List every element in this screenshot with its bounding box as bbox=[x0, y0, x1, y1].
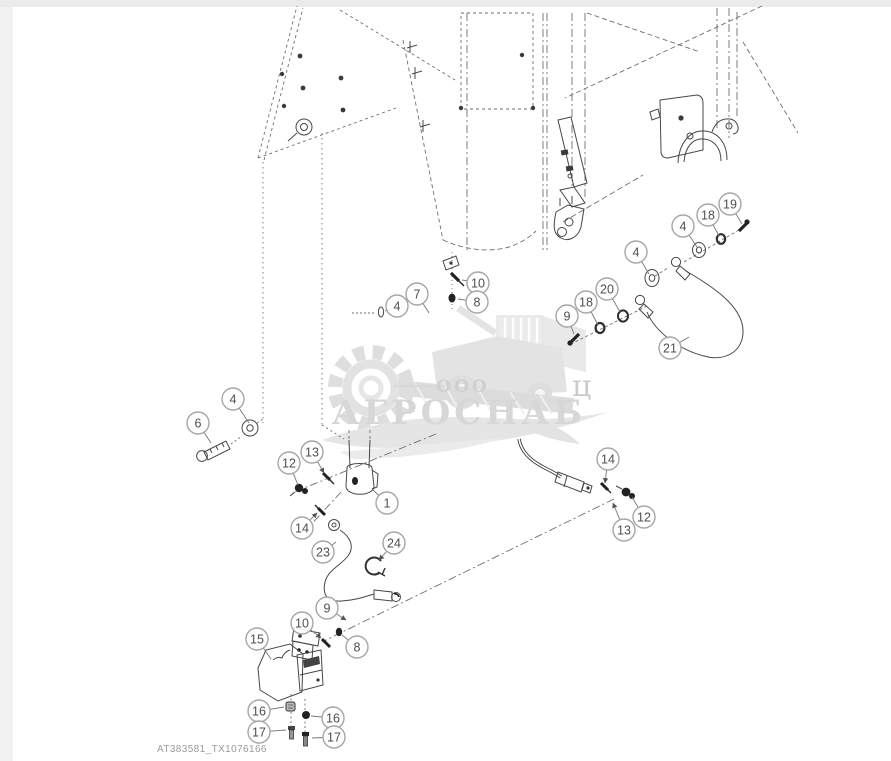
callout-14: 14 bbox=[291, 513, 317, 539]
cable-lockwasher-18b bbox=[596, 323, 605, 333]
bolt-13-left bbox=[323, 473, 334, 484]
svg-text:1: 1 bbox=[384, 496, 391, 510]
svg-text:17: 17 bbox=[252, 725, 266, 739]
callout-23: 23 bbox=[312, 541, 336, 563]
svg-text:12: 12 bbox=[637, 510, 651, 524]
callout-13: 13 bbox=[301, 441, 324, 473]
hose-assembly bbox=[324, 520, 400, 602]
watermark-company-name: АГРОСНАБ bbox=[332, 393, 586, 433]
callout-20: 20 bbox=[596, 278, 620, 312]
callout-4: 4 bbox=[222, 388, 249, 423]
svg-text:18: 18 bbox=[701, 208, 715, 222]
bolt-17-right bbox=[302, 732, 309, 746]
svg-text:12: 12 bbox=[282, 456, 296, 470]
callout-12: 12 bbox=[278, 452, 300, 485]
callout-18: 18 bbox=[575, 291, 598, 325]
svg-text:7: 7 bbox=[414, 287, 421, 301]
svg-text:21: 21 bbox=[663, 341, 677, 355]
svg-text:19: 19 bbox=[723, 197, 737, 211]
callout-10: 10 bbox=[291, 612, 321, 638]
svg-text:4: 4 bbox=[633, 245, 640, 259]
svg-text:13: 13 bbox=[305, 445, 319, 459]
callout-21: 21 bbox=[659, 337, 689, 359]
clamp-24 bbox=[366, 558, 385, 576]
callout-24: 24 bbox=[379, 532, 405, 560]
callout-6: 6 bbox=[187, 412, 211, 443]
ground-cable-assembly bbox=[567, 219, 749, 357]
callout-1: 1 bbox=[373, 490, 398, 514]
cable-washer-4a bbox=[693, 243, 706, 258]
watermark-stray-letter: ц bbox=[572, 369, 591, 404]
svg-text:23: 23 bbox=[316, 545, 330, 559]
svg-text:14: 14 bbox=[295, 521, 309, 535]
callout-19: 19 bbox=[719, 193, 742, 224]
callout-4: 4 bbox=[385, 295, 408, 317]
svg-text:8: 8 bbox=[474, 295, 481, 309]
sensor-12-left bbox=[290, 484, 308, 496]
svg-text:4: 4 bbox=[680, 219, 687, 233]
svg-text:4: 4 bbox=[230, 392, 237, 406]
harness-clip bbox=[443, 252, 464, 312]
callout-4: 4 bbox=[672, 215, 697, 247]
cable-washer-4b bbox=[645, 270, 659, 287]
callout-16: 16 bbox=[311, 707, 344, 729]
callout-8: 8 bbox=[342, 635, 368, 658]
svg-text:10: 10 bbox=[295, 616, 309, 630]
callout-17: 17 bbox=[312, 726, 345, 748]
bushing-16-right bbox=[302, 711, 310, 719]
grommet-8-lower bbox=[336, 628, 342, 636]
callout-15: 15 bbox=[246, 628, 271, 659]
bushing-16-left bbox=[286, 702, 295, 711]
bolt-14-right bbox=[601, 483, 611, 493]
connector-cable-right bbox=[322, 439, 635, 642]
svg-text:10: 10 bbox=[471, 276, 485, 290]
svg-text:24: 24 bbox=[387, 536, 401, 550]
bolt-17-left bbox=[288, 726, 295, 739]
svg-text:8: 8 bbox=[354, 640, 361, 654]
svg-text:20: 20 bbox=[600, 282, 614, 296]
watermark: ООО АГРОСНАБ ц bbox=[322, 305, 608, 459]
svg-text:4: 4 bbox=[394, 299, 401, 313]
svg-text:16: 16 bbox=[326, 711, 340, 725]
svg-text:13: 13 bbox=[617, 523, 631, 537]
callout-12: 12 bbox=[632, 497, 655, 528]
svg-text:14: 14 bbox=[601, 452, 615, 466]
svg-text:17: 17 bbox=[327, 730, 341, 744]
svg-text:18: 18 bbox=[579, 295, 593, 309]
svg-text:6: 6 bbox=[195, 416, 202, 430]
callout-4: 4 bbox=[625, 241, 649, 274]
figure-label: AT383581_TX1076166 bbox=[157, 744, 267, 755]
svg-text:15: 15 bbox=[250, 632, 264, 646]
plate-grommet bbox=[288, 119, 312, 141]
callout-16: 16 bbox=[248, 700, 284, 722]
callout-7: 7 bbox=[406, 283, 429, 313]
mount-bracket-plate bbox=[650, 95, 703, 158]
callout-18: 18 bbox=[697, 204, 719, 236]
svg-text:9: 9 bbox=[324, 601, 331, 615]
svg-text:16: 16 bbox=[252, 704, 266, 718]
callout-14: 14 bbox=[597, 448, 619, 483]
callout-17: 17 bbox=[248, 721, 286, 743]
parts-catalog-page: ООО АГРОСНАБ ц bbox=[0, 0, 891, 761]
svg-text:9: 9 bbox=[564, 309, 571, 323]
callout-9: 9 bbox=[316, 597, 346, 620]
callout-13: 13 bbox=[613, 503, 635, 541]
exploded-parts-diagram: ООО АГРОСНАБ ц bbox=[0, 0, 891, 761]
